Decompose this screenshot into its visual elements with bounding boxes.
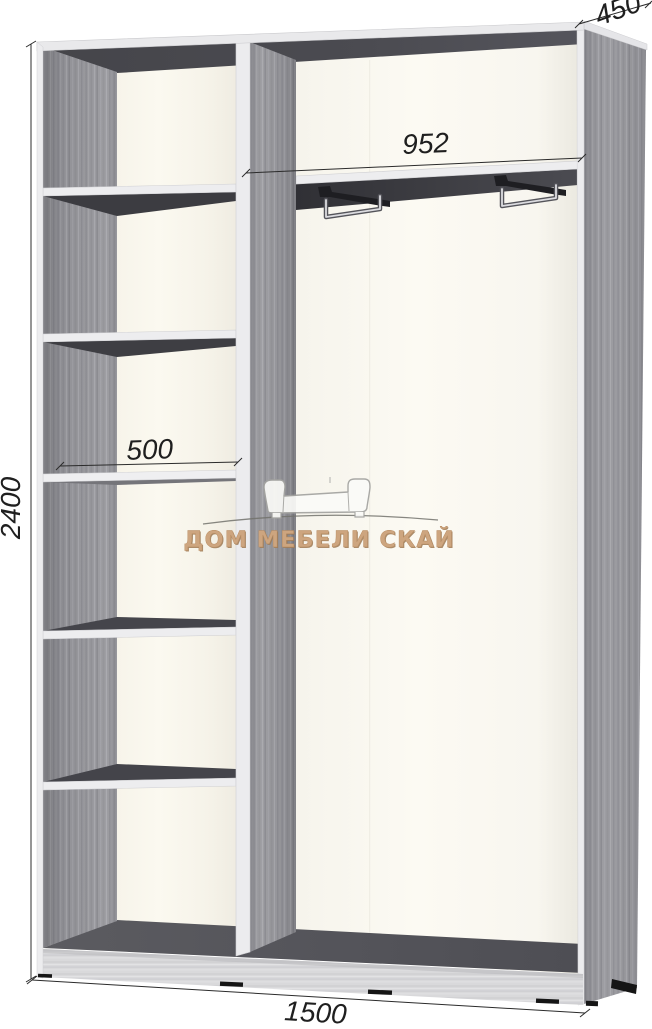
- dimension-left-section-label: 500: [126, 433, 174, 466]
- dimension-height-label: 2400: [0, 476, 26, 540]
- left-side-panel-shading: [43, 47, 117, 948]
- wardrobe-diagram: ДОМ МЕБЕЛИ СКАЙ ДОМ МЕБЕЛИ СКАЙ 2400 150…: [0, 0, 652, 1029]
- divider-panel-front-edge: [236, 42, 250, 956]
- watermark-text: ДОМ МЕБЕЛИ СКАЙ: [183, 525, 454, 553]
- left-panel-front-edge: [37, 42, 43, 978]
- dimension-depth-label: 450: [590, 0, 645, 32]
- dimension-right-section-label: 952: [402, 127, 450, 160]
- right-side-panel-front-edge: [577, 22, 584, 1005]
- wardrobe-drawing-svg: ДОМ МЕБЕЛИ СКАЙ ДОМ МЕБЕЛИ СКАЙ 2400 150…: [0, 0, 652, 1029]
- right-side-panel-shading: [584, 26, 646, 1004]
- dimension-width-label: 1500: [284, 995, 348, 1029]
